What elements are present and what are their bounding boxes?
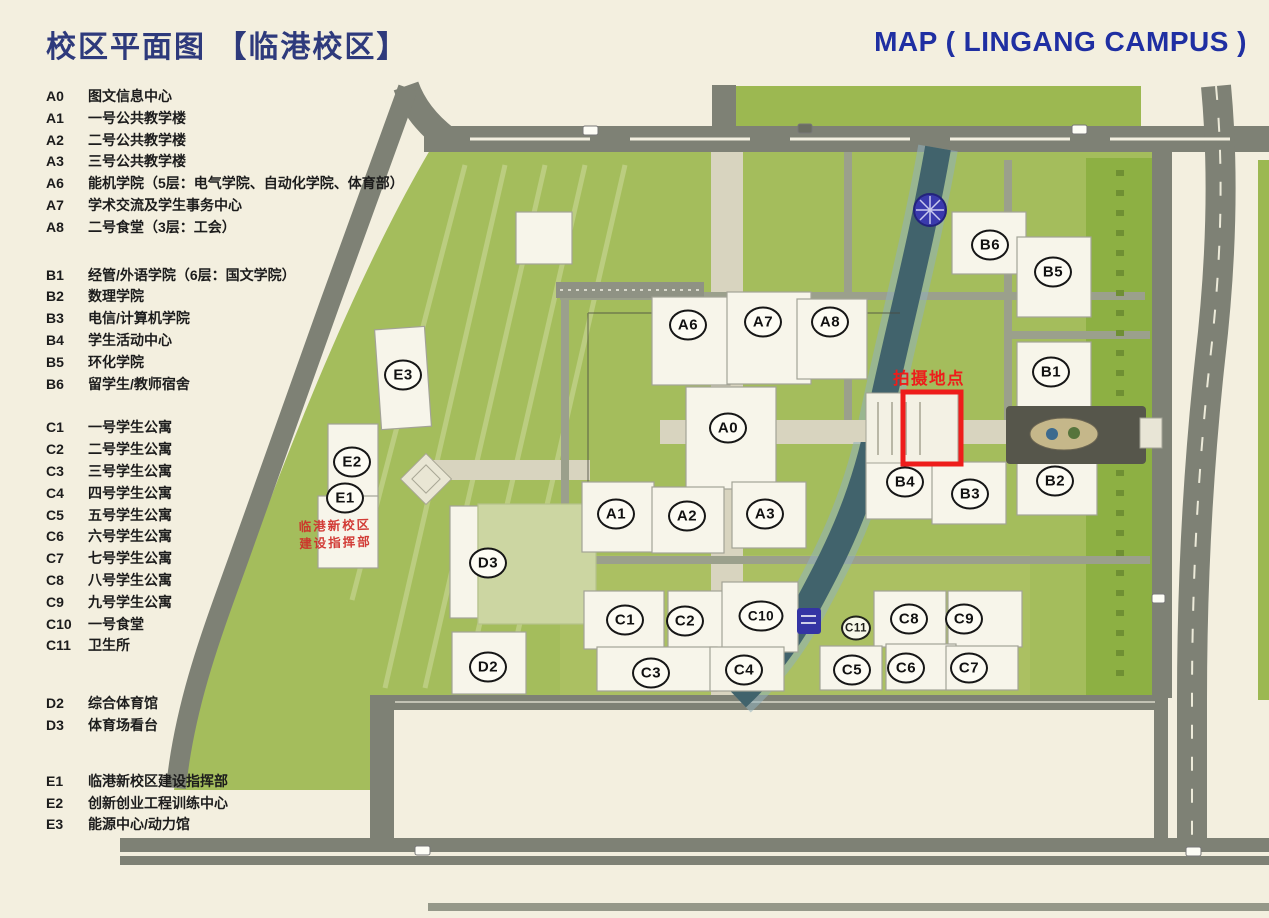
legend-item-E3: E3能源中心/动力馆 — [46, 814, 406, 836]
legend-item-B4: B4学生活动中心 — [46, 330, 406, 352]
legend-label: 学生活动中心 — [88, 330, 406, 352]
legend-code: B3 — [46, 308, 88, 330]
building-marker-B6: B6 — [971, 230, 1009, 261]
building-marker-D3: D3 — [469, 548, 507, 579]
legend-item-D2: D2综合体育馆 — [46, 693, 406, 715]
legend-item-C11: C11卫生所 — [46, 635, 406, 657]
building-marker-C1: C1 — [606, 605, 644, 636]
legend-code: C11 — [46, 635, 88, 657]
legend-item-A7: A7学术交流及学生事务中心 — [46, 195, 406, 217]
legend-item-A6: A6能机学院（5层：电气学院、自动化学院、体育部） — [46, 173, 406, 195]
legend-item-B2: B2数理学院 — [46, 286, 406, 308]
legend-label: 卫生所 — [88, 635, 406, 657]
legend-code: E3 — [46, 814, 88, 836]
campus-map-page: 校区平面图 【临港校区】 MAP ( LINGANG CAMPUS ) A0图文… — [0, 0, 1269, 918]
building-marker-C3: C3 — [632, 658, 670, 689]
legend-label: 环化学院 — [88, 352, 406, 374]
legend-code: B6 — [46, 374, 88, 396]
legend-code: A2 — [46, 130, 88, 152]
legend-code: C7 — [46, 548, 88, 570]
legend-code: C2 — [46, 439, 88, 461]
legend-label: 九号学生公寓 — [88, 592, 406, 614]
legend-code: C5 — [46, 505, 88, 527]
river-compass-icon — [914, 194, 946, 226]
building-marker-B3: B3 — [951, 479, 989, 510]
photo-spot-building — [866, 393, 958, 463]
building-marker-C6: C6 — [887, 653, 925, 684]
legend-code: D2 — [46, 693, 88, 715]
legend-label: 临港新校区建设指挥部 — [88, 771, 406, 793]
legend-item-E1: E1临港新校区建设指挥部 — [46, 771, 406, 793]
construction-sign-line2: 建设指挥部 — [299, 534, 372, 554]
legend-code: D3 — [46, 715, 88, 737]
legend-label: 创新创业工程训练中心 — [88, 793, 406, 815]
building-marker-A0: A0 — [709, 413, 747, 444]
legend-label: 一号公共教学楼 — [88, 108, 406, 130]
legend-label: 经管/外语学院（6层：国文学院） — [88, 265, 406, 287]
legend-code: C4 — [46, 483, 88, 505]
legend-label: 一号食堂 — [88, 614, 406, 636]
legend-item-A2: A2二号公共教学楼 — [46, 130, 406, 152]
legend-label: 八号学生公寓 — [88, 570, 406, 592]
legend-item-A8: A8二号食堂（3层：工会） — [46, 217, 406, 239]
legend-label: 能机学院（5层：电气学院、自动化学院、体育部） — [88, 173, 406, 195]
building-marker-C8: C8 — [890, 604, 928, 635]
page-title-zh: 校区平面图 【临港校区】 — [46, 22, 408, 66]
building-marker-D2: D2 — [469, 652, 507, 683]
legend-label: 留学生/教师宿舍 — [88, 374, 406, 396]
building-marker-A2: A2 — [668, 501, 706, 532]
legend-label: 二号食堂（3层：工会） — [88, 217, 406, 239]
building-marker-C11: C11 — [841, 616, 871, 641]
legend-item-C9: C9九号学生公寓 — [46, 592, 406, 614]
legend-item-B6: B6留学生/教师宿舍 — [46, 374, 406, 396]
parking-strip — [556, 282, 704, 298]
legend-code: A8 — [46, 217, 88, 239]
construction-sign: 临港新校区 建设指挥部 — [298, 517, 372, 554]
building-marker-A6: A6 — [669, 310, 707, 341]
legend-item-A3: A3三号公共教学楼 — [46, 151, 406, 173]
building-marker-C5: C5 — [833, 655, 871, 686]
legend-item-D3: D3体育场看台 — [46, 715, 406, 737]
building-marker-C7: C7 — [950, 653, 988, 684]
building-marker-B5: B5 — [1034, 257, 1072, 288]
legend-code: C8 — [46, 570, 88, 592]
legend-code: C10 — [46, 614, 88, 636]
legend-code: B2 — [46, 286, 88, 308]
legend-label: 图文信息中心 — [88, 86, 406, 108]
building-marker-B4: B4 — [886, 467, 924, 498]
building-marker-C4: C4 — [725, 655, 763, 686]
legend-code: A3 — [46, 151, 88, 173]
legend-item-B5: B5环化学院 — [46, 352, 406, 374]
legend-item-B3: B3电信/计算机学院 — [46, 308, 406, 330]
legend-label: 一号学生公寓 — [88, 417, 406, 439]
river-sign-icon — [797, 608, 821, 634]
legend-group-D: D2综合体育馆D3体育场看台 — [46, 693, 406, 737]
legend-group-B: B1经管/外语学院（6层：国文学院）B2数理学院B3电信/计算机学院B4学生活动… — [46, 265, 406, 396]
building-marker-A1: A1 — [597, 499, 635, 530]
legend-code: B5 — [46, 352, 88, 374]
building-marker-E3: E3 — [384, 360, 422, 391]
building-marker-C9: C9 — [945, 604, 983, 635]
building-marker-A7: A7 — [744, 307, 782, 338]
building-marker-C10: C10 — [739, 601, 784, 632]
building-marker-E2: E2 — [333, 447, 371, 478]
legend-item-C8: C8八号学生公寓 — [46, 570, 406, 592]
legend-item-C1: C1一号学生公寓 — [46, 417, 406, 439]
legend-code: A7 — [46, 195, 88, 217]
legend-label: 数理学院 — [88, 286, 406, 308]
legend-label: 电信/计算机学院 — [88, 308, 406, 330]
photo-location-label: 拍摄地点 — [893, 365, 973, 389]
legend-group-A: A0图文信息中心A1一号公共教学楼A2二号公共教学楼A3三号公共教学楼A6能机学… — [46, 86, 406, 239]
building-marker-B1: B1 — [1032, 357, 1070, 388]
legend-code: B4 — [46, 330, 88, 352]
legend-item-B1: B1经管/外语学院（6层：国文学院） — [46, 265, 406, 287]
legend-label: 二号公共教学楼 — [88, 130, 406, 152]
legend-code: C6 — [46, 526, 88, 548]
legend-label: 能源中心/动力馆 — [88, 814, 406, 836]
east-gate-plaza — [1006, 406, 1162, 464]
legend-code: C3 — [46, 461, 88, 483]
legend-item-A0: A0图文信息中心 — [46, 86, 406, 108]
legend-code: A1 — [46, 108, 88, 130]
legend-label: 综合体育馆 — [88, 693, 406, 715]
legend-code: C9 — [46, 592, 88, 614]
legend-item-A1: A1一号公共教学楼 — [46, 108, 406, 130]
building-marker-C2: C2 — [666, 606, 704, 637]
legend-label: 体育场看台 — [88, 715, 406, 737]
legend-code: E2 — [46, 793, 88, 815]
legend-label: 七号学生公寓 — [88, 548, 406, 570]
legend-label: 学术交流及学生事务中心 — [88, 195, 406, 217]
building-marker-A3: A3 — [746, 499, 784, 530]
building-marker-B2: B2 — [1036, 466, 1074, 497]
legend-group-E: E1临港新校区建设指挥部E2创新创业工程训练中心E3能源中心/动力馆 — [46, 771, 406, 836]
legend-code: A6 — [46, 173, 88, 195]
legend-label: 三号公共教学楼 — [88, 151, 406, 173]
legend-item-E2: E2创新创业工程训练中心 — [46, 793, 406, 815]
page-title-en: MAP ( LINGANG CAMPUS ) — [874, 26, 1247, 58]
legend-code: E1 — [46, 771, 88, 793]
building-marker-E1: E1 — [326, 483, 364, 514]
legend-code: A0 — [46, 86, 88, 108]
building-marker-A8: A8 — [811, 307, 849, 338]
legend-item-C10: C10一号食堂 — [46, 614, 406, 636]
legend-code: C1 — [46, 417, 88, 439]
legend-code: B1 — [46, 265, 88, 287]
